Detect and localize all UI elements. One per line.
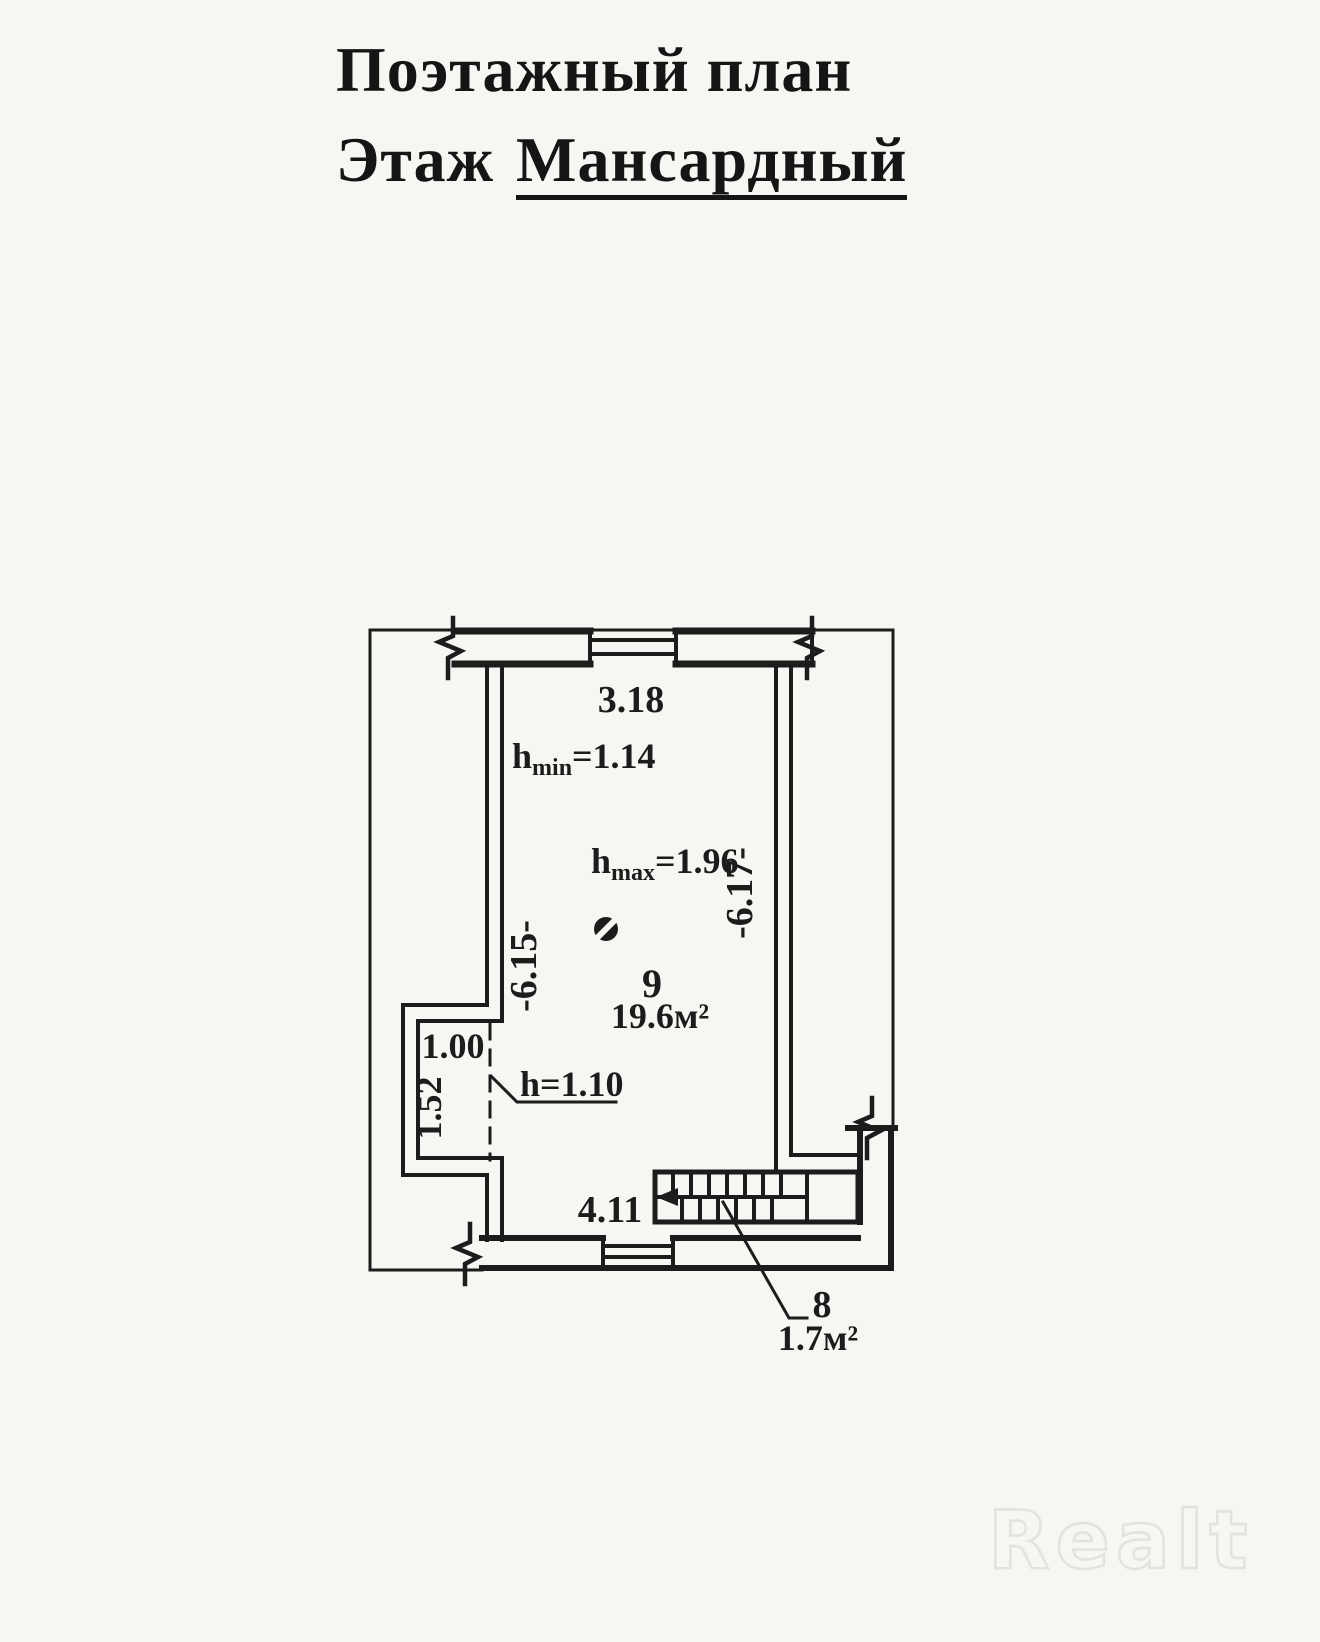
left-interior-wall [403, 666, 502, 1240]
top-wall [455, 631, 812, 664]
right-interior-wall [776, 666, 858, 1172]
right-wall-inner-line [791, 666, 858, 1155]
floor-plan-drawing: 3.18 hmin=1.14 hmax=1.96 -6.17- -6.15- 9… [0, 0, 1320, 1637]
dim-right-length-label: -6.17- [719, 847, 761, 939]
floor-label: Этаж [336, 124, 494, 195]
stair-shaft-wall [848, 1128, 895, 1268]
top-window-glazing [590, 640, 676, 654]
page-title: Поэтажный план [336, 38, 852, 102]
stair-treads-upper [673, 1172, 781, 1197]
alcove-width-label: 1.00 [422, 1026, 485, 1066]
alcove-depth-label: 1.52 [409, 1077, 449, 1140]
floor-subtitle: ЭтажМансардный [336, 128, 907, 200]
stair-direction-arrow [656, 1188, 678, 1206]
left-wall-outer-line [403, 666, 487, 1240]
staircase [655, 1172, 858, 1222]
dim-top-width-label: 3.18 [598, 679, 665, 721]
h-max-label: hmax=1.96 [591, 841, 739, 886]
h-low-zone-label: h=1.10 [520, 1064, 624, 1104]
bottom-wall-window-jambs [603, 1238, 673, 1268]
dim-bottom-width-label: 4.11 [578, 1189, 642, 1231]
room9-area: 19.6м² [611, 996, 709, 1036]
break-mark-top-left [439, 618, 461, 678]
page-title-text: Поэтажный план [336, 34, 852, 105]
scanned-floor-plan-page: Поэтажный план ЭтажМансардный [0, 0, 1320, 1637]
vent-symbol [594, 917, 618, 941]
h-min-label: hmin=1.14 [512, 736, 656, 781]
bottom-window-glazing [603, 1246, 673, 1257]
bottom-wall [482, 1238, 891, 1268]
room8-area: 1.7м² [778, 1318, 858, 1358]
floor-name-underlined: Мансардный [516, 128, 907, 200]
dim-left-length-label: -6.15- [503, 920, 545, 1012]
break-mark-bottom [456, 1224, 478, 1284]
break-mark-top-right [798, 618, 820, 678]
top-wall-window-jambs [590, 631, 812, 664]
realt-watermark-logo: Realt [988, 1494, 1254, 1587]
